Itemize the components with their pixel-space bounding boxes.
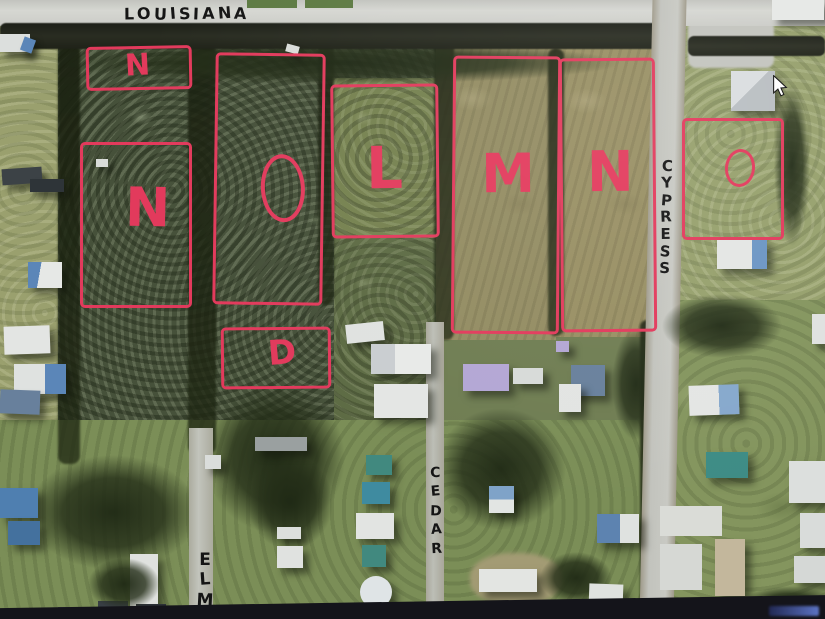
- house: [4, 325, 51, 355]
- parcel-outline-o-east: O: [682, 118, 784, 240]
- house: [772, 0, 824, 20]
- vehicle: [30, 179, 64, 192]
- tree-clump: [662, 294, 782, 358]
- house: [28, 262, 62, 288]
- house: [8, 521, 40, 545]
- house: [513, 368, 543, 384]
- shed: [556, 341, 569, 352]
- parcel-label-oval: O: [723, 148, 757, 189]
- parcel-label-oval: O: [259, 153, 307, 223]
- house: [0, 389, 40, 414]
- house: [277, 546, 303, 568]
- parcel-label: N: [587, 145, 634, 201]
- house: [374, 384, 428, 418]
- parcel-outline-n-large: N: [80, 142, 192, 308]
- shed: [277, 527, 301, 539]
- concrete-pad: [660, 506, 722, 536]
- concrete-pad: [660, 544, 702, 590]
- parcel-label: L: [366, 139, 404, 197]
- house: [479, 569, 537, 592]
- aerial-parcel-map[interactable]: N N O L M N O D LOUISIANA CYPRESS CEDAR …: [0, 0, 825, 619]
- parcel-outline-o-tall: O: [212, 52, 326, 306]
- house: [463, 364, 509, 391]
- house: [794, 556, 825, 583]
- house: [489, 486, 514, 513]
- road-median-green: [305, 0, 353, 8]
- house: [789, 461, 825, 503]
- house: [800, 513, 825, 548]
- parcel-label: N: [125, 181, 171, 236]
- parcel-outline-n-marker: N: [86, 45, 193, 91]
- house: [0, 488, 38, 518]
- house: [362, 482, 390, 504]
- tree-clump: [88, 558, 160, 610]
- house: [706, 452, 748, 478]
- street-label-cypress: CYPRESS: [653, 158, 678, 278]
- canal: [688, 36, 825, 56]
- mouse-cursor-icon: [771, 75, 789, 97]
- parcel-outline-d-box: D: [221, 327, 332, 390]
- house: [688, 384, 739, 416]
- house: [717, 239, 767, 269]
- shed: [255, 437, 307, 451]
- watermark: [769, 606, 819, 616]
- house: [366, 455, 392, 475]
- tree-line: [188, 44, 216, 454]
- house: [371, 344, 431, 374]
- house: [715, 539, 745, 596]
- street-label-louisiana: LOUISIANA: [124, 3, 250, 23]
- tree-line: [58, 44, 80, 464]
- parcel-label: M: [481, 147, 535, 201]
- tree-clump: [28, 455, 198, 570]
- parcel-label: N: [124, 50, 151, 81]
- street-label-elm: ELM: [194, 550, 216, 610]
- parcel-label: D: [267, 335, 298, 371]
- house: [559, 384, 581, 412]
- house: [356, 513, 394, 539]
- canal: [0, 23, 668, 49]
- road-median-green: [247, 0, 297, 8]
- house: [362, 545, 386, 567]
- house: [597, 514, 639, 543]
- parcel-outline-l: L: [330, 83, 440, 238]
- street-label-cedar: CEDAR: [425, 464, 447, 559]
- house: [345, 321, 385, 344]
- parcel-outline-n-east: N: [559, 58, 657, 333]
- house: [812, 314, 825, 344]
- shed: [205, 455, 221, 469]
- house: [731, 71, 775, 111]
- parcel-outline-m: M: [451, 56, 561, 335]
